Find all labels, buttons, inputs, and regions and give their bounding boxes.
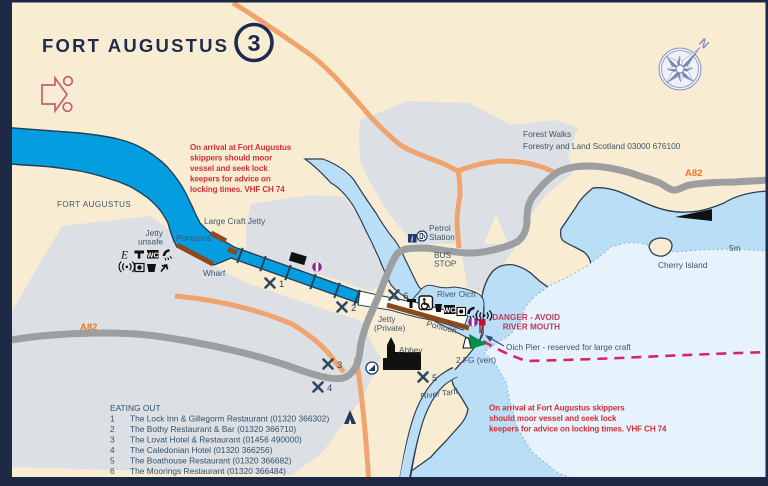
svg-text:Oich Pier - reserved for large: Oich Pier - reserved for large craft <box>506 342 632 352</box>
svg-text:2 FG (vert): 2 FG (vert) <box>456 355 496 365</box>
svg-text:skippers should moor: skippers should moor <box>190 154 273 163</box>
svg-text:E: E <box>120 250 128 262</box>
svg-text:WC: WC <box>444 308 456 315</box>
svg-text:Wharf: Wharf <box>203 268 226 278</box>
svg-text:The Moorings Restaurant (01320: The Moorings Restaurant (01320 366484) <box>130 466 286 476</box>
svg-text:5m: 5m <box>729 243 741 253</box>
svg-text:The Lock Inn & Gillegorm Resta: The Lock Inn & Gillegorm Restaurant (013… <box>130 414 329 424</box>
svg-text:unsafe: unsafe <box>138 237 163 247</box>
svg-text:4: 4 <box>327 383 332 394</box>
svg-text:On arrival at Fort Augustus sk: On arrival at Fort Augustus skippers <box>489 404 625 413</box>
svg-text:locking times. VHF CH 74: locking times. VHF CH 74 <box>190 185 285 194</box>
svg-text:3: 3 <box>337 360 342 371</box>
svg-text:The Caledonian Hotel (01320 36: The Caledonian Hotel (01320 366256) <box>130 445 273 455</box>
svg-text:vessel and seek lock: vessel and seek lock <box>190 164 268 173</box>
svg-text:Large Craft Jetty: Large Craft Jetty <box>204 216 266 226</box>
svg-text:(Private): (Private) <box>374 323 406 333</box>
svg-text:The Lovat Hotel & Restaurant (: The Lovat Hotel & Restaurant (01456 4900… <box>130 435 302 445</box>
svg-text:keepers for advice on locking: keepers for advice on locking times. VHF… <box>489 425 667 434</box>
svg-text:3: 3 <box>110 435 115 445</box>
svg-text:River Oich: River Oich <box>437 289 476 299</box>
svg-text:Station: Station <box>429 232 455 242</box>
svg-text:RIVER MOUTH: RIVER MOUTH <box>503 323 560 332</box>
svg-text:The Bothy Restaurant & Bar (01: The Bothy Restaurant & Bar (01320 366710… <box>130 424 296 434</box>
svg-text:5: 5 <box>110 456 115 466</box>
svg-text:EATING OUT: EATING OUT <box>110 403 161 413</box>
svg-text:3: 3 <box>247 30 260 56</box>
svg-text:A82: A82 <box>685 168 702 179</box>
svg-text:1: 1 <box>110 414 115 424</box>
svg-text:5: 5 <box>432 373 437 384</box>
svg-text:On arrival at Fort Augustus: On arrival at Fort Augustus <box>190 143 292 152</box>
svg-text:Forest Walks: Forest Walks <box>523 129 571 139</box>
svg-text:1: 1 <box>279 279 284 290</box>
svg-text:FORT AUGUSTUS: FORT AUGUSTUS <box>57 200 131 209</box>
svg-text:DANGER - AVOID: DANGER - AVOID <box>492 313 560 322</box>
svg-text:The Boathouse Restaurant (0132: The Boathouse Restaurant (01320 366682) <box>130 456 292 466</box>
svg-text:2: 2 <box>110 424 115 434</box>
svg-text:should moor vessel and seek lo: should moor vessel and seek lock <box>489 414 617 423</box>
svg-text:6: 6 <box>110 466 115 476</box>
svg-text:STOP: STOP <box>434 259 457 269</box>
svg-text:keepers for advice on: keepers for advice on <box>190 175 271 184</box>
svg-text:Cherry Island: Cherry Island <box>658 260 708 270</box>
svg-text:Forestry and Land Scotland 030: Forestry and Land Scotland 03000 676100 <box>523 141 681 151</box>
svg-text:FORT AUGUSTUS: FORT AUGUSTUS <box>42 35 229 56</box>
svg-text:Pontoons: Pontoons <box>176 233 211 243</box>
svg-text:Abbey: Abbey <box>399 345 423 355</box>
svg-text:2: 2 <box>351 303 356 314</box>
svg-text:4: 4 <box>110 445 115 455</box>
svg-text:A82: A82 <box>80 322 97 333</box>
svg-text:WC: WC <box>147 252 159 259</box>
